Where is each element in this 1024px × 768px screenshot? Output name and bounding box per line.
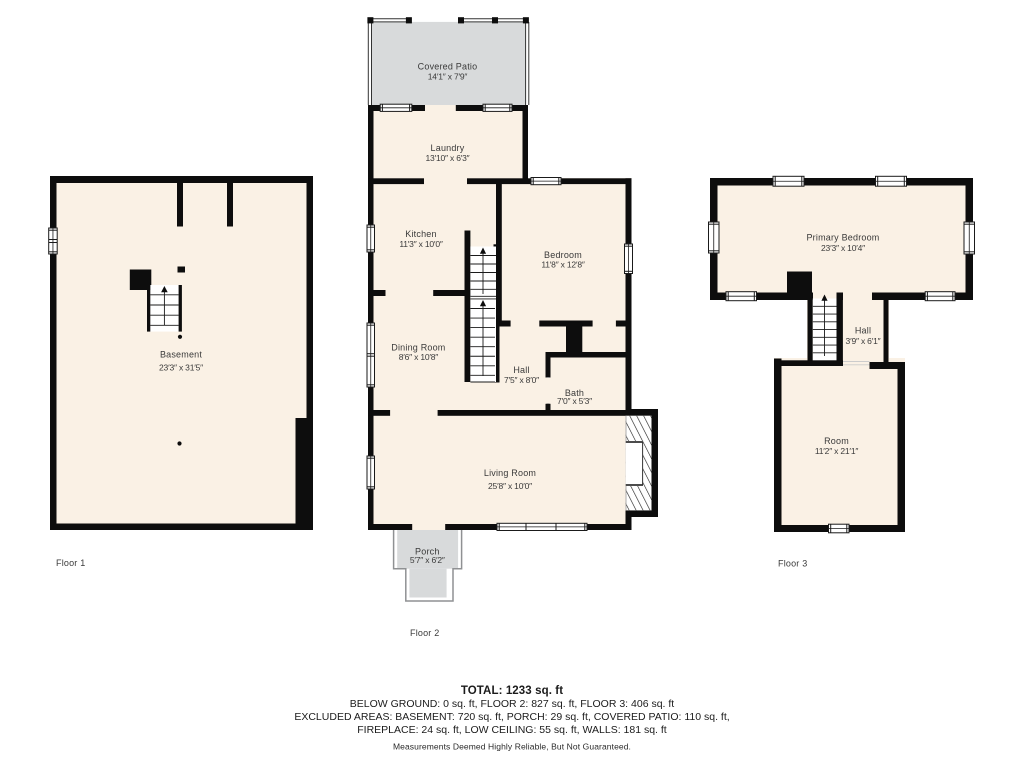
svg-text:Measurements Deemed Highly Rel: Measurements Deemed Highly Reliable, But…	[393, 742, 631, 752]
svg-text:Living Room: Living Room	[484, 468, 536, 478]
svg-text:Primary Bedroom: Primary Bedroom	[806, 233, 879, 243]
svg-text:25′8″ x 10′0″: 25′8″ x 10′0″	[488, 481, 532, 491]
svg-text:13′10″ x 6′3″: 13′10″ x 6′3″	[426, 153, 470, 163]
svg-text:8′6″ x 10′8″: 8′6″ x 10′8″	[399, 352, 439, 362]
svg-text:11′8″ x 12′8″: 11′8″ x 12′8″	[541, 259, 585, 269]
svg-text:BELOW GROUND: 0 sq. ft, FLOOR: BELOW GROUND: 0 sq. ft, FLOOR 2: 827 sq.…	[350, 698, 675, 710]
svg-text:23′3″ x 31′5″: 23′3″ x 31′5″	[159, 363, 203, 373]
svg-text:Laundry: Laundry	[431, 143, 465, 153]
svg-text:Bedroom: Bedroom	[544, 250, 582, 260]
svg-text:5′7″ x 6′2″: 5′7″ x 6′2″	[410, 555, 445, 565]
svg-text:Floor 2: Floor 2	[410, 628, 439, 638]
svg-text:3′9″ x 6′1″: 3′9″ x 6′1″	[846, 336, 881, 346]
svg-text:FIREPLACE: 24 sq. ft, LOW CEIL: FIREPLACE: 24 sq. ft, LOW CEILING: 55 sq…	[357, 724, 667, 736]
svg-text:Hall: Hall	[513, 365, 529, 375]
svg-text:14′1″ x 7′9″: 14′1″ x 7′9″	[428, 71, 468, 81]
svg-text:Floor 3: Floor 3	[778, 559, 807, 569]
svg-text:Floor 1: Floor 1	[56, 558, 85, 568]
svg-text:7′5″ x 8′0″: 7′5″ x 8′0″	[504, 375, 539, 385]
svg-text:7′0″ x 5′3″: 7′0″ x 5′3″	[557, 396, 592, 406]
svg-text:Basement: Basement	[160, 350, 202, 360]
svg-text:TOTAL: 1233 sq. ft: TOTAL: 1233 sq. ft	[461, 685, 563, 697]
svg-text:Hall: Hall	[855, 326, 871, 336]
svg-text:EXCLUDED AREAS: BASEMENT: 720: EXCLUDED AREAS: BASEMENT: 720 sq. ft, PO…	[294, 711, 729, 723]
svg-text:11′3″ x 10′0″: 11′3″ x 10′0″	[399, 239, 443, 249]
svg-text:Room: Room	[824, 436, 849, 446]
svg-text:Kitchen: Kitchen	[405, 229, 436, 239]
svg-text:23′3″ x 10′4″: 23′3″ x 10′4″	[821, 243, 865, 253]
svg-text:11′2″ x 21′1″: 11′2″ x 21′1″	[815, 446, 859, 456]
svg-text:Covered Patio: Covered Patio	[418, 62, 478, 72]
